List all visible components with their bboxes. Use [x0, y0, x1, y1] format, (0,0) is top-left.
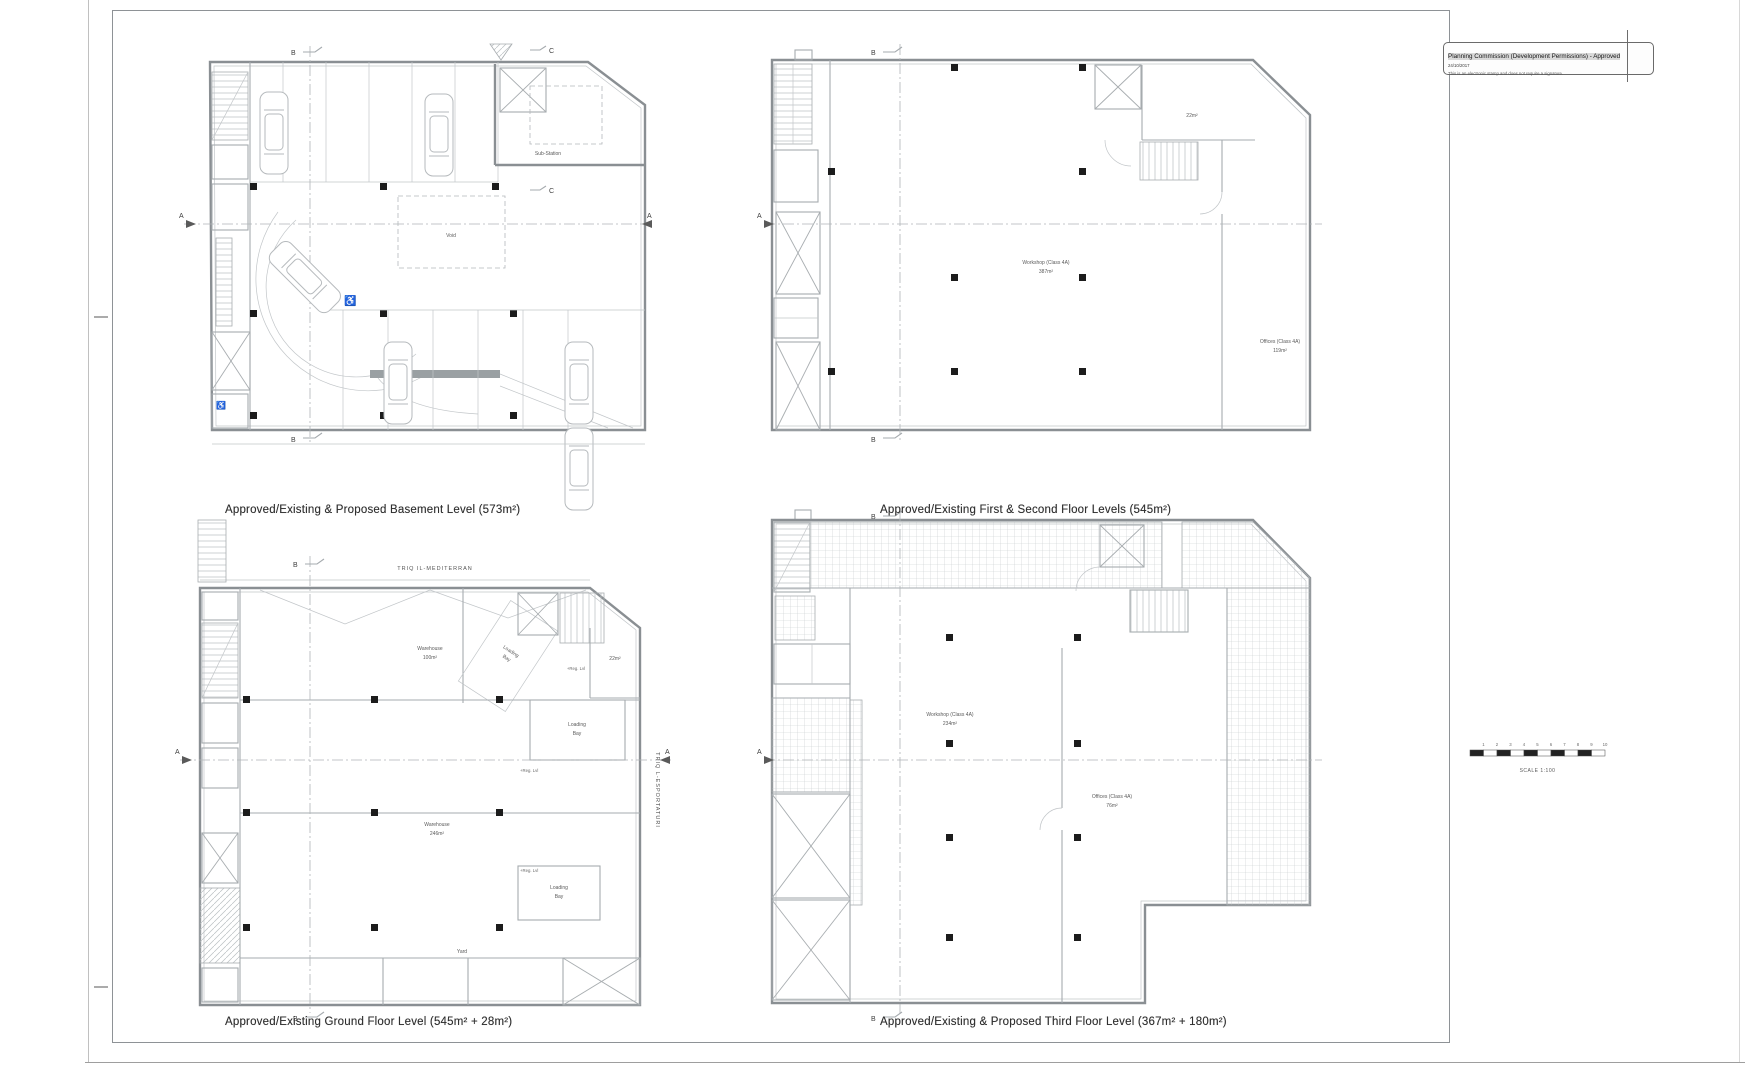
svg-text:B: B — [293, 562, 298, 569]
workshop-area-label: 387m² — [1039, 269, 1054, 275]
stairs-icon — [212, 72, 248, 140]
warehouse-label: Warehouse — [424, 822, 450, 828]
terrace-tiles — [810, 522, 1162, 588]
shaft-window — [776, 342, 820, 430]
ground-floor-plan: TRIQ IL-MEDITERRAN Loading Bay Warehouse — [178, 508, 678, 1023]
stairs-icon — [560, 593, 604, 643]
svg-text:6: 6 — [1550, 742, 1553, 747]
basement-plan: Sub-Station Void — [178, 42, 660, 457]
shaft-window — [772, 900, 850, 1000]
margin-tick-lower — [94, 986, 108, 988]
store-hatch — [200, 888, 240, 963]
scale-bar: 1 2 3 4 5 6 7 8 9 10 SCALE 1:100 — [1462, 736, 1622, 782]
offices-label: Offices (Class 4A) — [1092, 794, 1133, 800]
svg-text:Bay: Bay — [573, 731, 582, 737]
svg-text:B: B — [871, 437, 876, 444]
svg-text:C: C — [549, 48, 554, 55]
level-mark: +Reg. Lvl — [567, 666, 585, 671]
workshop-area-label: 234m² — [943, 721, 958, 727]
stairs-icon — [774, 64, 812, 144]
terrace-tiles — [772, 698, 850, 792]
svg-text:B: B — [871, 1016, 876, 1023]
svg-text:2: 2 — [1496, 742, 1499, 747]
svg-text:C: C — [549, 188, 554, 195]
svg-text:A: A — [757, 749, 762, 756]
wheelchair-icon: ♿ — [344, 294, 356, 307]
first-second-caption: Approved/Existing First & Second Floor L… — [880, 504, 1171, 516]
partition-wall — [1200, 140, 1222, 430]
yard-label: Yard — [457, 949, 467, 955]
terrace-tiles — [850, 700, 862, 905]
loading-bay-room: Loading Bay — [518, 866, 600, 920]
level-mark: +Reg. Lvl — [520, 768, 538, 773]
workshop-label: Workshop (Class 4A) — [1022, 260, 1069, 266]
substation-label: Sub-Station — [535, 151, 561, 157]
basement-caption: Approved/Existing & Proposed Basement Le… — [225, 504, 520, 516]
stamp-date: 24/10/2017 — [1448, 64, 1649, 69]
svg-text:1: 1 — [1482, 742, 1485, 747]
columns — [946, 634, 1081, 941]
svg-text:A: A — [179, 213, 184, 220]
section-marker-a-right: A — [660, 749, 670, 764]
section-marker-b-top: B — [291, 47, 322, 57]
scan-edge-left — [88, 0, 89, 1062]
partition-wall — [1040, 648, 1062, 1003]
svg-text:B: B — [871, 514, 876, 521]
elevator-icon — [212, 332, 250, 390]
scan-artifact-line — [1627, 30, 1628, 82]
level-mark: +Reg. Lvl — [520, 868, 538, 873]
third-floor-plan: Workshop (Class 4A) 234m² Offices (Class… — [762, 508, 1328, 1023]
scanned-drawing-sheet: Sub-Station Void — [0, 0, 1755, 1080]
section-marker-a-right: A — [642, 213, 652, 228]
columns — [828, 64, 1086, 375]
svg-text:4: 4 — [1523, 742, 1526, 747]
elevator-icon — [1095, 65, 1141, 109]
svg-text:7: 7 — [1563, 742, 1566, 747]
workshop-label: Workshop (Class 4A) — [926, 712, 973, 718]
section-marker-b-bottom: B — [291, 433, 322, 444]
exterior-stair — [198, 520, 226, 582]
street-name-top: TRIQ IL-MEDITERRAN — [397, 566, 472, 572]
loading-bay-room: Loading Bay — [530, 700, 625, 760]
stairs-icon — [202, 623, 238, 698]
void-label: Void — [446, 233, 456, 239]
stairs-icon — [1130, 590, 1188, 632]
svg-text:Bay: Bay — [555, 894, 564, 900]
scale-label: SCALE 1:100 — [1520, 768, 1556, 774]
section-marker-a-left: A — [179, 213, 196, 228]
section-marker-b-top: B — [293, 559, 324, 569]
section-marker-b-bottom: B — [871, 433, 902, 444]
duct-shaft — [216, 238, 232, 326]
svg-text:8: 8 — [1577, 742, 1580, 747]
svg-text:3: 3 — [1509, 742, 1512, 747]
svg-text:B: B — [291, 50, 296, 57]
wheelchair-icon: ♿ — [216, 400, 226, 410]
room-area-label: 22m² — [609, 656, 621, 662]
terrace-tiles — [1227, 588, 1310, 905]
svg-text:Loading: Loading — [568, 722, 586, 728]
section-marker-b-top: B — [871, 47, 902, 57]
offices-label: Offices (Class 4A) — [1260, 339, 1301, 345]
ground-caption: Approved/Existing Ground Floor Level (54… — [225, 1016, 512, 1028]
loading-bay-slanted: Loading Bay — [458, 600, 557, 711]
void-outline — [398, 196, 505, 268]
approval-stamp: Planning Commission (Development Permiss… — [1443, 42, 1654, 75]
svg-text:A: A — [175, 749, 180, 756]
scan-edge-right — [1739, 0, 1740, 1062]
margin-tick-upper — [94, 316, 108, 318]
svg-text:B: B — [871, 50, 876, 57]
svg-text:Loading: Loading — [550, 885, 568, 891]
svg-text:B: B — [291, 437, 296, 444]
stairs-icon — [1140, 142, 1198, 180]
scale-segments — [1470, 750, 1605, 756]
stamp-title: Planning Commission (Development Permiss… — [1448, 53, 1620, 60]
vent-icon — [490, 44, 512, 60]
shutter-door — [260, 590, 430, 624]
warehouse-area-label: 246m² — [430, 831, 445, 837]
third-caption: Approved/Existing & Proposed Third Floor… — [880, 1016, 1227, 1028]
svg-text:A: A — [757, 213, 762, 220]
svg-text:5: 5 — [1536, 742, 1539, 747]
svg-text:A: A — [665, 749, 670, 756]
first-second-floor-plan: 22m² Workshop (Class 4A) 387m² Offices (… — [762, 42, 1328, 457]
elevator-icon — [500, 68, 546, 112]
terrace-tiles — [1182, 522, 1310, 588]
scan-edge-bottom — [85, 1062, 1745, 1063]
section-marker-c-mid: C — [530, 186, 554, 195]
svg-text:A: A — [647, 213, 652, 220]
warehouse-label: Warehouse — [417, 646, 443, 652]
scale-ticks: 1 2 3 4 5 6 7 8 9 10 — [1482, 742, 1608, 747]
terrace-tiles — [775, 596, 815, 640]
room-area-label: 22m² — [1186, 113, 1198, 119]
section-marker-a-left: A — [175, 749, 192, 764]
offices-area-label: 119m² — [1273, 348, 1287, 354]
svg-text:9: 9 — [1590, 742, 1593, 747]
street-name-right: TRIQ L-ESPORTATURI — [654, 752, 660, 828]
svg-text:10: 10 — [1603, 742, 1608, 747]
elevator-icon — [202, 833, 238, 883]
stamp-note: This is an electronic stamp and does not… — [1448, 72, 1649, 77]
warehouse-area-label: 100m² — [423, 655, 438, 661]
stairs-icon — [774, 522, 810, 592]
shaft-window — [772, 794, 850, 898]
ramp — [563, 958, 640, 1005]
elevator-icon — [518, 593, 558, 635]
offices-area-label: 76m² — [1106, 803, 1118, 809]
section-marker-c-top: C — [530, 46, 554, 55]
